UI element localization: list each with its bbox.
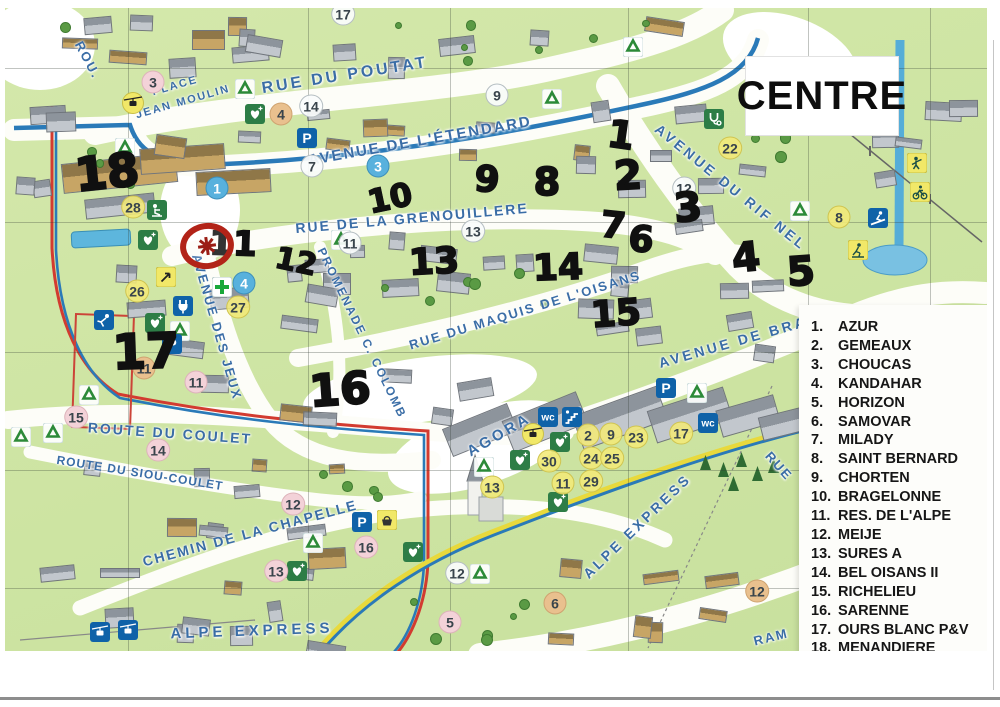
gondola-circle-icon	[122, 92, 144, 114]
svg-text:P: P	[661, 380, 670, 396]
building	[267, 600, 284, 623]
legend-item-number: 10.	[811, 488, 838, 507]
tree	[461, 44, 468, 51]
legend-item-name: CHOUCAS	[838, 357, 911, 373]
legend-item-number: 5.	[811, 394, 838, 413]
recycle-icon	[687, 383, 707, 403]
map-number-badge: 3	[367, 155, 390, 178]
map-number-badge: 4	[270, 103, 293, 126]
handwritten-number: 14	[532, 247, 584, 290]
legend-list: 1.AZUR2.GEMEAUX3.CHOUCAS4.KANDAHAR5.HORI…	[811, 318, 987, 651]
legend-item-name: OURS BLANC P&V	[838, 622, 969, 638]
building	[739, 163, 767, 177]
building	[590, 99, 611, 123]
legend-item: 2.GEMEAUX	[811, 337, 987, 356]
tree	[514, 268, 525, 279]
legend-item: 4.KANDAHAR	[811, 375, 987, 394]
legend-item: 17.OURS BLANC P&V	[811, 621, 987, 640]
legend-item-name: SAMOVAR	[838, 414, 911, 430]
handwritten-number: 18	[72, 142, 141, 202]
recycle-icon	[790, 201, 810, 221]
recycle-icon	[542, 89, 562, 109]
map-number-badge: 2	[577, 424, 600, 447]
building	[438, 35, 476, 57]
recycle-icon	[79, 385, 99, 405]
handwritten-number: 2	[613, 152, 643, 199]
map-number-badge: 7	[301, 155, 324, 178]
handwritten-number: 4	[730, 234, 762, 283]
building	[15, 177, 35, 196]
map-number-badge: 11	[185, 371, 208, 394]
legend-item: 16.SARENNE	[811, 602, 987, 621]
heart-icon	[550, 432, 570, 452]
building	[698, 607, 728, 623]
building	[650, 150, 672, 162]
legend-item: 12.MEIJE	[811, 526, 987, 545]
tree	[381, 284, 389, 292]
map-number-badge: 4	[233, 272, 256, 295]
map-number-badge: 22	[718, 137, 742, 160]
heart-icon	[403, 542, 423, 562]
legend-item: 11.RES. DE L'ALPE	[811, 507, 987, 526]
recycle-icon	[623, 37, 643, 57]
tree	[395, 22, 402, 29]
map-number-badge: 14	[299, 95, 323, 118]
legend-panel: 1.AZUR2.GEMEAUX3.CHOUCAS4.KANDAHAR5.HORI…	[799, 305, 987, 651]
legend-item: 15.RICHELIEU	[811, 583, 987, 602]
building	[644, 16, 684, 37]
map-number-badge: 13	[480, 476, 504, 499]
red-star-icon	[195, 234, 220, 259]
tree	[642, 20, 649, 27]
scan-edge-right	[993, 40, 994, 690]
plug-icon	[173, 296, 193, 316]
building	[529, 29, 549, 46]
tree	[60, 22, 71, 33]
building	[576, 155, 596, 174]
recycle-icon	[470, 564, 490, 584]
legend-item-number: 9.	[811, 469, 838, 488]
map-number-badge: 30	[537, 450, 561, 473]
map-number-badge: 27	[226, 296, 250, 319]
tree	[319, 470, 328, 479]
recycle-icon	[11, 427, 31, 447]
legend-item-name: BEL OISANS II	[838, 565, 938, 581]
building	[459, 149, 478, 161]
map-title: CENTRE	[737, 74, 907, 119]
street-label: RUE	[762, 449, 796, 484]
map-number-badge: 8	[828, 206, 851, 229]
sport-bike-icon	[910, 182, 930, 202]
building	[40, 564, 76, 582]
pine-tree	[728, 476, 739, 491]
tree	[481, 634, 493, 646]
building	[949, 100, 978, 117]
legend-item-name: MILADY	[838, 432, 894, 448]
gondola-circle-icon	[522, 423, 544, 445]
legend-item: 18.MENANDIERE	[811, 639, 987, 651]
svg-text:wc: wc	[540, 413, 555, 424]
map-number-badge: 26	[125, 280, 149, 303]
doctor-icon	[704, 109, 724, 129]
handwritten-number: 7	[598, 204, 627, 247]
building	[46, 111, 76, 132]
resort-map: ROU.RUE DU POUTATPLACEJEAN MOULINAVENUE …	[5, 8, 987, 651]
parking-icon: P	[297, 128, 317, 148]
map-number-badge: 3	[142, 71, 165, 94]
building	[280, 315, 318, 334]
map-number-badge: 15	[64, 406, 88, 429]
building	[456, 377, 493, 401]
building	[233, 483, 261, 499]
building	[154, 133, 187, 158]
pine-tree	[700, 455, 711, 470]
legend-item-number: 7.	[811, 431, 838, 450]
heart-icon	[287, 561, 307, 581]
sport-tennis-icon	[907, 153, 927, 173]
building	[894, 136, 922, 150]
building	[482, 255, 505, 270]
building	[388, 232, 406, 251]
building	[633, 615, 653, 639]
svg-text:P: P	[302, 130, 311, 146]
map-number-badge: 28	[121, 196, 145, 219]
legend-item-number: 13.	[811, 545, 838, 564]
map-number-badge: 13	[461, 220, 485, 243]
handwritten-number: 6	[627, 219, 655, 262]
scanned-map-page: ROU.RUE DU POUTATPLACEJEAN MOULINAVENUE …	[0, 0, 1000, 707]
tree	[519, 599, 530, 610]
map-number-badge: 1	[206, 177, 229, 200]
recycle-icon	[43, 423, 63, 443]
building	[720, 283, 749, 300]
person-icon	[147, 200, 167, 220]
map-number-badge: 12	[445, 562, 469, 585]
map-number-badge: 5	[439, 611, 462, 634]
legend-item: 8.SAINT BERNARD	[811, 450, 987, 469]
swimming-pool	[71, 228, 132, 248]
street-label: ROUTE DU COULET	[87, 419, 252, 446]
handwritten-number: 3	[672, 184, 704, 232]
building	[192, 30, 225, 50]
legend-item-number: 8.	[811, 450, 838, 469]
handwritten-number: 17	[112, 323, 181, 381]
legend-item-number: 12.	[811, 526, 838, 545]
map-number-badge: 17	[669, 422, 693, 445]
building	[752, 280, 784, 294]
legend-item: 10.BRAGELONNE	[811, 488, 987, 507]
handwritten-number: 16	[308, 362, 373, 417]
building	[753, 344, 776, 364]
legend-item: 9.CHORTEN	[811, 469, 987, 488]
pine-tree	[752, 466, 763, 481]
recycle-icon	[303, 533, 323, 553]
map-title-box: CENTRE	[746, 57, 898, 135]
pharmacy-icon	[212, 277, 232, 297]
legend-item-number: 17.	[811, 621, 838, 640]
handwritten-number: 15	[590, 292, 643, 336]
building	[100, 568, 140, 579]
tree	[589, 34, 598, 43]
legend-item: 1.AZUR	[811, 318, 987, 337]
map-number-badge: 11	[552, 472, 575, 495]
building	[642, 570, 679, 586]
building	[130, 14, 154, 31]
map-number-badge: 6	[544, 592, 567, 615]
wc-icon: wc	[698, 413, 718, 433]
map-number-badge: 25	[600, 447, 624, 470]
recycle-icon	[474, 457, 494, 477]
building	[305, 640, 347, 651]
tree	[751, 134, 760, 143]
legend-item-name: RES. DE L'ALPE	[838, 508, 951, 524]
legend-item-number: 3.	[811, 356, 838, 375]
tree	[510, 613, 517, 620]
map-number-badge: 11	[339, 232, 362, 255]
handwritten-number: 5	[786, 248, 817, 296]
legend-item: 7.MILADY	[811, 431, 987, 450]
building	[333, 43, 357, 62]
legend-item-name: MEIJE	[838, 527, 882, 543]
legend-item-name: RICHELIEU	[838, 584, 916, 600]
svg-text:wc: wc	[700, 419, 715, 430]
map-number-badge: 9	[486, 84, 509, 107]
legend-item-name: KANDAHAR	[838, 376, 922, 392]
tree	[373, 492, 383, 502]
building	[83, 15, 113, 35]
handwritten-number: 12	[272, 241, 320, 284]
tree	[430, 633, 442, 645]
handwritten-number: 1	[605, 111, 637, 158]
tree	[425, 296, 436, 307]
map-number-badge: 13	[264, 560, 288, 583]
tree	[342, 481, 353, 492]
legend-item: 13.SURES A	[811, 545, 987, 564]
sport-skate-icon	[848, 240, 868, 260]
legend-item-name: AZUR	[838, 319, 878, 335]
parking-icon: P	[352, 512, 372, 532]
building	[167, 518, 197, 537]
legend-item-number: 11.	[811, 507, 838, 526]
building	[548, 632, 574, 645]
map-number-badge: 23	[624, 426, 648, 449]
legend-item-name: SURES A	[838, 546, 902, 562]
legend-item-name: CHORTEN	[838, 470, 910, 486]
map-number-badge: 14	[146, 439, 170, 462]
map-number-badge: 12	[281, 493, 305, 516]
tree	[410, 598, 418, 606]
svg-text:P: P	[357, 514, 366, 530]
scan-edge-bottom	[0, 697, 1000, 700]
heart-icon	[510, 450, 530, 470]
gondola-square-icon	[90, 622, 110, 642]
legend-item-number: 16.	[811, 602, 838, 621]
legend-item: 5.HORIZON	[811, 394, 987, 413]
building	[32, 178, 53, 198]
building	[363, 118, 389, 137]
shop-icon	[377, 510, 397, 530]
legend-item-name: SARENNE	[838, 603, 909, 619]
tree	[463, 56, 473, 66]
heart-icon	[245, 104, 265, 124]
legend-item-name: SAINT BERNARD	[838, 451, 958, 467]
street-label: RAM	[752, 625, 790, 648]
building	[874, 169, 897, 188]
legend-item-name: GEMEAUX	[838, 338, 911, 354]
heart-icon	[138, 230, 158, 250]
legend-item-name: HORIZON	[838, 395, 905, 411]
tree	[469, 278, 481, 290]
legend-item-number: 2.	[811, 337, 838, 356]
legend-item-number: 15.	[811, 583, 838, 602]
tree	[535, 46, 543, 54]
map-number-badge: 9	[600, 423, 623, 446]
legend-item: 14.BEL OISANS II	[811, 564, 987, 583]
handwritten-number: 13	[408, 240, 460, 284]
map-number-badge: 12	[745, 580, 769, 603]
parking-icon: P	[656, 378, 676, 398]
tree	[466, 20, 477, 31]
legend-item-number: 1.	[811, 318, 838, 337]
legend-item-number: 14.	[811, 564, 838, 583]
handwritten-number: 9	[473, 158, 502, 201]
pine-tree	[736, 452, 747, 467]
ski-jump-icon	[868, 208, 888, 228]
legend-item-name: MENANDIERE	[838, 640, 935, 651]
info-arrow-icon	[156, 267, 176, 287]
building	[238, 130, 261, 143]
recycle-icon	[235, 79, 255, 99]
street-label: ROU.	[72, 39, 104, 82]
map-number-badge: 16	[354, 536, 378, 559]
legend-item-name: BRAGELONNE	[838, 489, 941, 505]
handwritten-number: 8	[534, 160, 560, 204]
map-number-badge: 29	[579, 470, 603, 493]
legend-item: 6.SAMOVAR	[811, 413, 987, 432]
heart-icon	[548, 492, 568, 512]
tree	[775, 151, 786, 162]
legend-item-number: 4.	[811, 375, 838, 394]
legend-item-number: 6.	[811, 413, 838, 432]
legend-item-number: 18.	[811, 639, 838, 651]
gondola-square-icon	[118, 620, 138, 640]
building	[704, 571, 739, 588]
stairs-icon	[562, 407, 582, 427]
legend-item: 3.CHOUCAS	[811, 356, 987, 375]
map-number-badge: 17	[331, 8, 355, 26]
